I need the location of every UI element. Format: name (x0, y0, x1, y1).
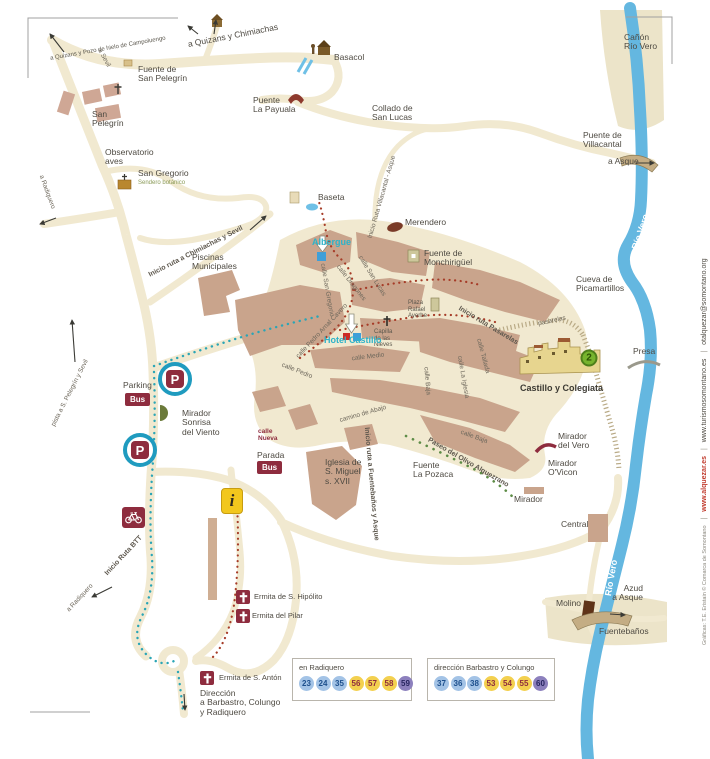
bike-route-icon (122, 507, 145, 528)
label-observatorio-aves: Observatorio aves (105, 148, 154, 167)
label-ermita-anton: Ermita de S. Antón (219, 674, 282, 682)
website-turismosomontano: www.turismosomontano.es (701, 359, 708, 443)
parking-icon-north: P (158, 362, 192, 396)
bus-stop-59: 59 (398, 676, 413, 691)
label-castillo-colegiata: Castillo y Colegiata (520, 384, 603, 394)
bus-badge-parking: Bus (125, 393, 150, 406)
label-collado-san-lucas: Collado de San Lucas (372, 104, 413, 123)
label-mirador-sonrisa-viento: Mirador Sonrisa del Viento (182, 409, 220, 437)
label-fuente-la-pozaca: Fuente La Pozaca (413, 461, 453, 480)
hut-icon (211, 14, 223, 27)
legend-radiquero: en Radiquero 23243556575859 (292, 658, 412, 701)
label-mirador: Mirador (514, 495, 543, 504)
mirador-sonrisa-icon (160, 405, 168, 421)
label-sendero-botanico: Sendero botánico (138, 180, 185, 187)
label-calle-nueva: calle Nueva (258, 428, 278, 442)
bus-stop-37: 37 (434, 676, 449, 691)
monchiriguel-fountain-icon (408, 250, 419, 262)
label-puente-la-payuala: Puente La Payuala (253, 96, 296, 115)
poi-2-badge: 2 (581, 350, 598, 367)
baseta-building-icon (290, 192, 299, 203)
label-fuentebanos: Fuentebaños (599, 627, 649, 636)
bus-stop-24: 24 (316, 676, 331, 691)
label-san-gregorio: San Gregorio (138, 169, 189, 178)
label-fuente-monchiriguel: Fuente de Monchirigüel (424, 249, 472, 268)
website-alquezar: www.alquezar.es (701, 456, 708, 512)
ermita-pilar-icon (236, 609, 250, 623)
label-central: Central (561, 520, 588, 529)
bus-stop-38: 38 (467, 676, 482, 691)
email-otalquezar: otalquezar@somontano.org (701, 258, 708, 345)
label-azud-a-asque: Azud a Asque (612, 584, 643, 603)
ermita-hipolito-icon (236, 590, 250, 604)
map-credits: Gráficas: T.E. Eristain © Comarca de Som… (701, 258, 708, 645)
bus-stop-60: 60 (533, 676, 548, 691)
label-hotel-castillo: Hotel Castillo (324, 336, 382, 346)
label-puente-villacantal: Puente de Villacantal (583, 131, 622, 150)
bus-stop-56: 56 (349, 676, 364, 691)
separator: | (701, 518, 708, 520)
label-ermita-pilar: Ermita del Pilar (252, 612, 303, 620)
label-parada: Parada (257, 451, 284, 460)
parking-icon-south: P (123, 433, 157, 467)
bus-stop-23: 23 (299, 676, 314, 691)
label-basacol: Basacol (334, 53, 364, 62)
albergue-marker (317, 252, 326, 261)
label-direccion-barbastro: Dirección a Barbastro, Colungo y Radique… (200, 689, 280, 717)
label-ermita-hipolito: Ermita de S. Hipólito (254, 593, 322, 601)
label-san-pelegrin: San Pelegrín (92, 110, 124, 129)
fuente-pelegrin-icon (124, 60, 132, 66)
label-fuente-san-pelegrin: Fuente de San Pelegrín (138, 65, 187, 84)
label-molino: Molino (556, 599, 581, 608)
alquezar-tourist-map: a Quizans y Pozo de hielo de Campoluengo… (0, 0, 710, 759)
legend-barbastro-colungo: dirección Barbastro y Colungo 3736385354… (427, 658, 555, 701)
separator: | (701, 448, 708, 450)
separator: | (701, 351, 708, 353)
label-mirador-del-vero: Mirador del Vero (558, 432, 589, 451)
legend-title: dirección Barbastro y Colungo (434, 663, 548, 672)
label-canon-rio-vero: Cañón Río Vero (624, 33, 657, 52)
bus-badge-parada: Bus (257, 461, 282, 474)
bus-stop-54: 54 (500, 676, 515, 691)
bus-stop-57: 57 (365, 676, 380, 691)
label-baseta: Baseta (318, 193, 344, 202)
bus-stop-58: 58 (382, 676, 397, 691)
label-albergue: Albergue (312, 238, 351, 248)
san-gregorio-icon (118, 174, 131, 189)
label-piscinas-municipales: Piscinas Municipales (192, 253, 237, 272)
bus-stop-numbers: 23243556575859 (299, 676, 405, 691)
bus-stop-36: 36 (451, 676, 466, 691)
baseta-pond-icon (306, 204, 318, 211)
label-presa: Presa (633, 347, 655, 356)
label-parking: Parking (123, 381, 152, 390)
ermita-anton-icon (200, 671, 214, 685)
bus-stop-35: 35 (332, 676, 347, 691)
bus-stop-numbers: 37363853545560 (434, 676, 548, 691)
label-plaza-rafael-ayerbe: Plaza Rafael Ayerbe (408, 300, 427, 320)
bus-stop-55: 55 (517, 676, 532, 691)
label-cueva-picamartillos: Cueva de Picamartillos (576, 275, 624, 294)
info-office-icon: i (221, 488, 243, 514)
label-merendero: Merendero (405, 218, 446, 227)
credits-text: Gráficas: T.E. Eristain © Comarca de Som… (702, 525, 708, 645)
label-mirador-ovicon: Mirador O'Vicon (548, 459, 577, 478)
basacol-hut-icon (311, 40, 331, 55)
wall-strip (208, 518, 217, 600)
plaza-icon (431, 298, 439, 311)
bus-stop-53: 53 (484, 676, 499, 691)
legend-title: en Radiquero (299, 663, 405, 672)
label-a-asque: a Asque (608, 157, 639, 166)
label-iglesia-san-miguel: Iglesia de S. Miguel s. XVII (325, 458, 361, 486)
